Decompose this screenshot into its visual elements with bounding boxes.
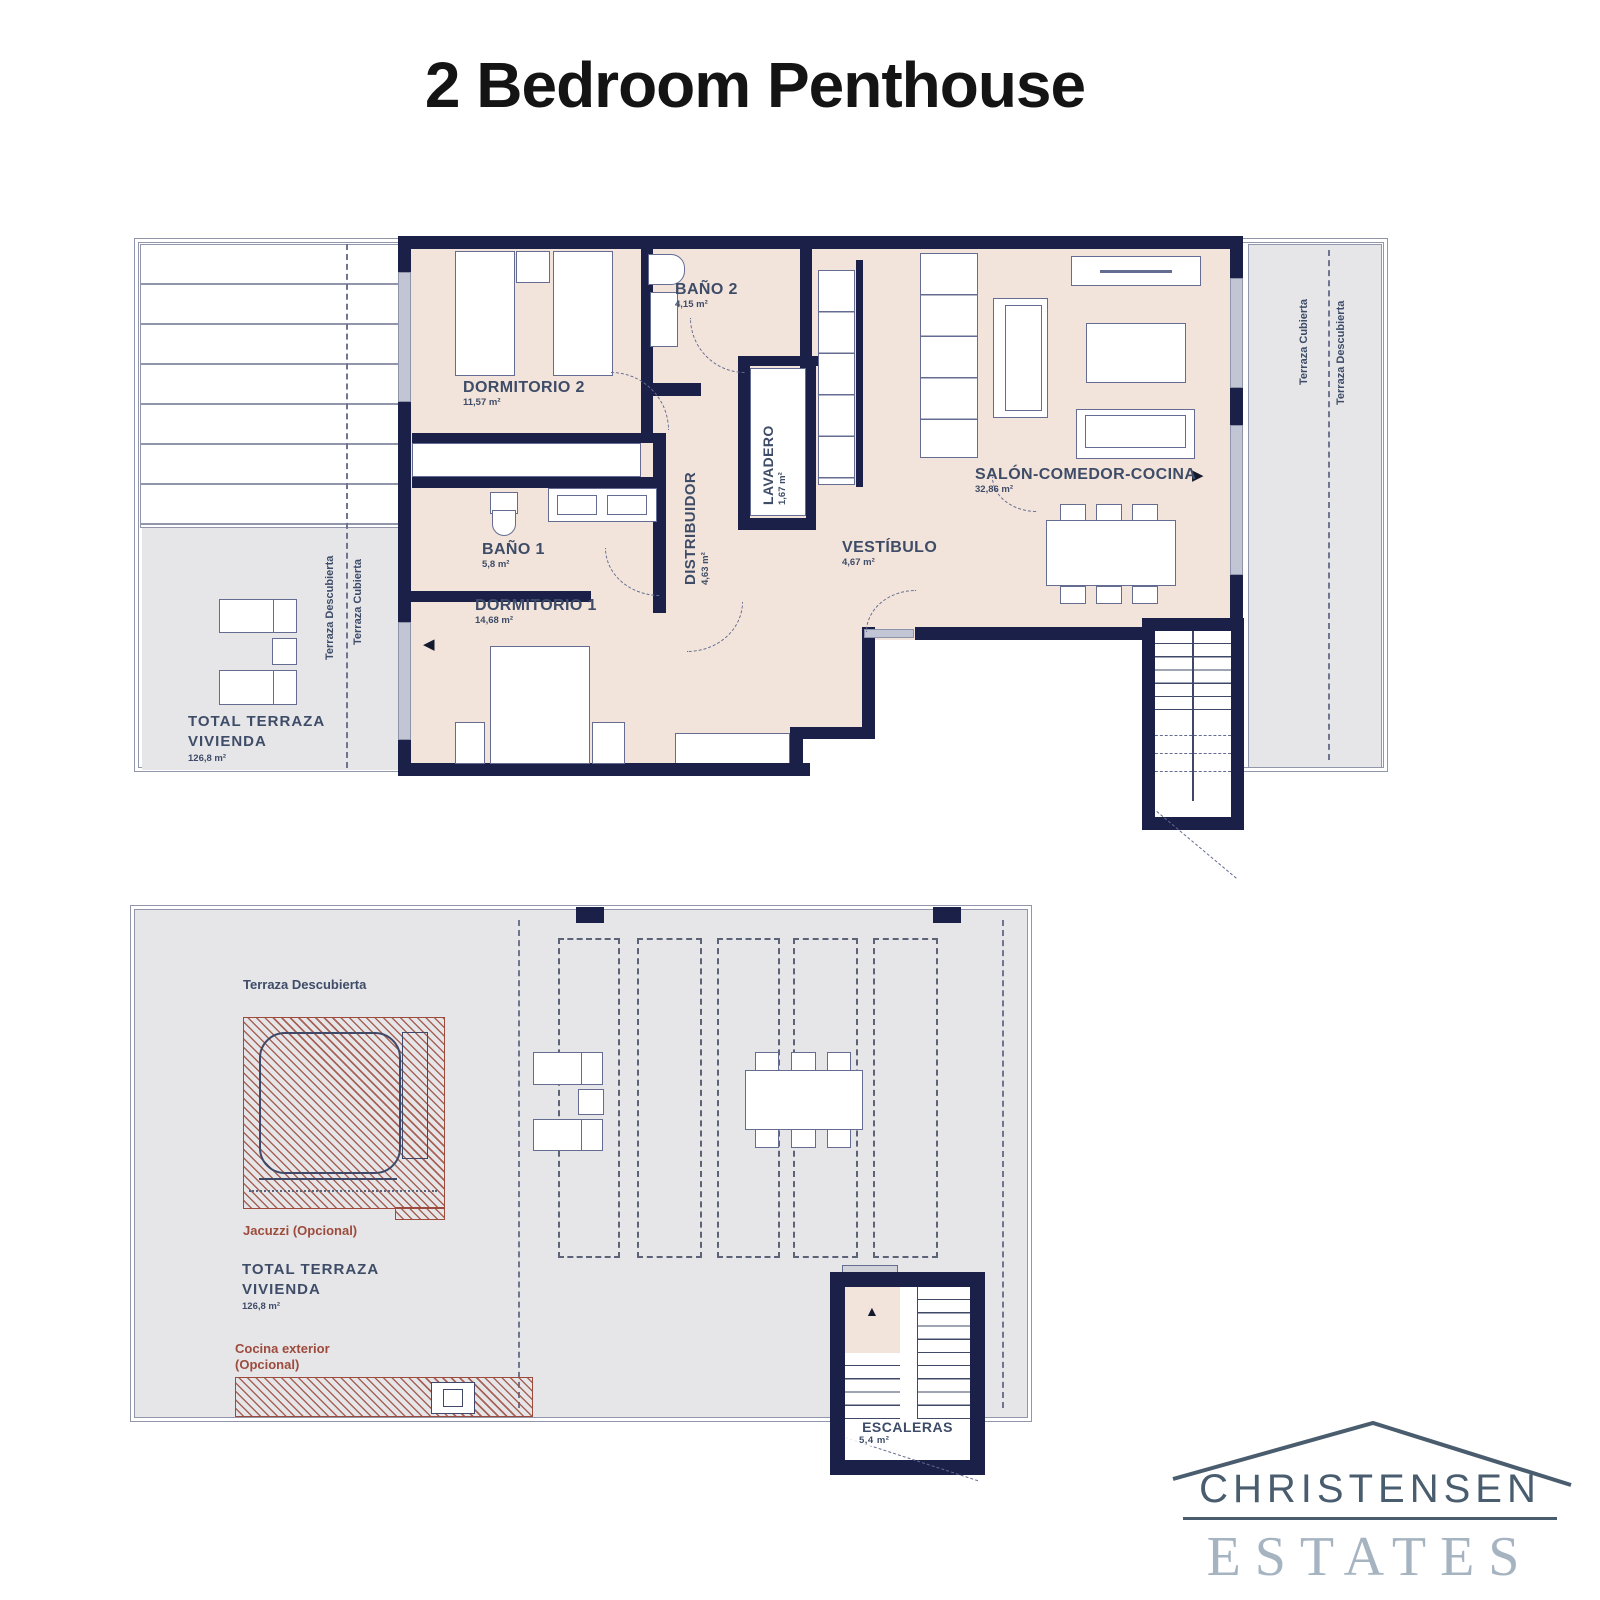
- wall: [915, 627, 1150, 640]
- room-area: 5,4 m²: [845, 1435, 970, 1446]
- page-title: 2 Bedroom Penthouse: [0, 48, 1510, 122]
- total-line2: VIVIENDA: [188, 733, 267, 750]
- chair: [755, 1052, 779, 1071]
- right-terrace: [1248, 244, 1382, 768]
- sun-lounger: [533, 1119, 603, 1151]
- room-name: BAÑO 2: [675, 281, 738, 298]
- window: [398, 622, 411, 740]
- total-line1: TOTAL TERRAZA: [242, 1261, 379, 1278]
- jacuzzi-label: Jacuzzi (Opcional): [243, 1223, 357, 1239]
- room-area: 5,8 m²: [482, 559, 545, 570]
- dining-table: [1046, 520, 1176, 586]
- room-name: DISTRIBUIDOR: [682, 472, 699, 585]
- bed: [490, 646, 590, 764]
- outdoor-kitchen-label: Cocina exterior (Opcional): [235, 1341, 330, 1374]
- total-terrace-note: TOTAL TERRAZA VIVIENDA 126,8 m²: [188, 712, 325, 765]
- room-name: DORMITORIO 1: [475, 597, 597, 614]
- terrace-divider-line: [346, 244, 348, 768]
- pergola-bay: [873, 938, 938, 1258]
- chair: [827, 1052, 851, 1071]
- chair: [1132, 586, 1158, 604]
- stairwell: [1142, 618, 1244, 830]
- wall: [738, 518, 816, 530]
- room-label-bano2: BAÑO 2 4,15 m²: [675, 280, 738, 311]
- pillar: [576, 907, 604, 923]
- view-arrow-left-icon: ◀: [423, 635, 435, 653]
- toilet: [492, 510, 516, 536]
- brand-divider: [1183, 1517, 1557, 1520]
- facade-recess: [675, 733, 790, 764]
- room-name: SALÓN-COMEDOR-COCINA: [975, 466, 1196, 483]
- bed: [553, 251, 613, 376]
- brand-type: ESTATES: [1155, 1525, 1585, 1589]
- stair-stringer: [1192, 631, 1194, 801]
- window: [398, 272, 411, 402]
- sun-lounger: [219, 670, 297, 705]
- room-label-salon: SALÓN-COMEDOR-COCINA 32,86 m²: [975, 465, 1196, 496]
- jacuzzi-step: [395, 1207, 445, 1220]
- terrace-label-descubierta: Terraza Descubierta: [1335, 255, 1347, 405]
- terrace-divider-line: [1328, 250, 1330, 760]
- terrace-label-descubierta: Terraza Descubierta: [324, 525, 336, 660]
- lower-floor-plan: Terraza Descubierta Jacuzzi (Opcional) T…: [130, 905, 1035, 1480]
- room-label-lavadero: LAVADERO 1,67 m²: [760, 380, 788, 505]
- exterior-cutout: [862, 640, 1142, 776]
- room-label-dormitorio2: DORMITORIO 2 11,57 m²: [463, 378, 585, 409]
- total-area: 126,8 m²: [188, 753, 325, 766]
- chair: [1060, 586, 1086, 604]
- nightstand: [592, 722, 625, 764]
- stair-step-dashed: [1155, 771, 1231, 772]
- nightstand: [455, 722, 485, 764]
- room-area: 14,68 m²: [475, 615, 597, 626]
- room-area: 32,86 m²: [975, 484, 1196, 495]
- coffee-table: [1086, 323, 1186, 383]
- pergola-bay: [637, 938, 702, 1258]
- terrace-label-cubierta: Terraza Cubierta: [1298, 255, 1310, 385]
- room-label-vestibulo: VESTÍBULO 4,67 m²: [842, 538, 937, 569]
- wall: [806, 356, 816, 530]
- wall: [738, 356, 750, 530]
- cocina-line2: (Opcional): [235, 1357, 299, 1372]
- window: [1230, 425, 1243, 575]
- room-area: 4,67 m²: [842, 557, 937, 568]
- wall: [790, 727, 803, 776]
- room-label-distribuidor: DISTRIBUIDOR 4,63 m²: [682, 400, 711, 585]
- stair-steps: [917, 1287, 970, 1419]
- side-table: [272, 638, 297, 665]
- total-area: 126,8 m²: [242, 1301, 379, 1314]
- wall: [398, 236, 1243, 249]
- kitchen-cabinets: [818, 270, 855, 485]
- roof-dashed-line: [518, 920, 520, 1408]
- up-arrow-icon: ▲: [865, 1303, 879, 1319]
- stair-step-dashed: [1155, 735, 1231, 736]
- dining-table: [745, 1070, 863, 1130]
- room-area: 1,67 m²: [777, 380, 788, 505]
- roof-terrace-label: Terraza Descubierta: [243, 977, 366, 992]
- pillar: [933, 907, 961, 923]
- stairs-label: ESCALERAS 5,4 m²: [845, 1419, 970, 1446]
- total-line2: VIVIENDA: [242, 1281, 321, 1298]
- wall: [398, 763, 810, 776]
- chair: [791, 1129, 816, 1148]
- sun-lounger: [533, 1052, 603, 1085]
- wall: [412, 433, 653, 443]
- total-line1: TOTAL TERRAZA: [188, 713, 325, 730]
- room-name: LAVADERO: [760, 425, 776, 505]
- upper-floor-plan: Terraza Descubierta Terraza Cubierta TOT…: [130, 230, 1392, 840]
- chair: [827, 1129, 851, 1148]
- sofa: [993, 298, 1048, 418]
- sun-lounger: [219, 599, 297, 633]
- shower: [650, 292, 678, 347]
- kitchen-island: [920, 253, 978, 458]
- wall: [862, 627, 875, 739]
- jacuzzi: [243, 1017, 445, 1209]
- terrace-label-cubierta: Terraza Cubierta: [352, 525, 364, 645]
- cocina-line1: Cocina exterior: [235, 1341, 330, 1356]
- outdoor-kitchen-counter: [235, 1377, 533, 1417]
- roof-dashed-line: [1002, 920, 1004, 1408]
- room-area: 4,15 m²: [675, 299, 738, 310]
- total-terrace-note: TOTAL TERRAZA VIVIENDA 126,8 m²: [242, 1260, 379, 1313]
- room-label-dormitorio1: DORMITORIO 1 14,68 m²: [475, 596, 597, 627]
- nightstand: [516, 251, 550, 283]
- stair-step-dashed: [1155, 753, 1231, 754]
- room-name: DORMITORIO 2: [463, 379, 585, 396]
- chair: [755, 1129, 779, 1148]
- brand-logo: CHRISTENSEN ESTATES: [1155, 1415, 1585, 1595]
- room-area: 11,57 m²: [463, 397, 585, 408]
- bathroom-counter: [548, 488, 657, 522]
- chair: [791, 1052, 816, 1071]
- room-name: VESTÍBULO: [842, 539, 937, 556]
- stair-landing: ▲: [845, 1287, 900, 1353]
- sofa: [1076, 409, 1195, 459]
- brand-name: CHRISTENSEN: [1155, 1467, 1585, 1512]
- room-name: ESCALERAS: [862, 1419, 953, 1435]
- room-name: BAÑO 1: [482, 541, 545, 558]
- bed: [455, 251, 515, 376]
- tv-unit: [1071, 256, 1201, 286]
- wardrobe: [412, 443, 641, 477]
- stair-steps: [845, 1353, 900, 1419]
- floor-plan-sheet: 2 Bedroom Penthouse Terraza Descubierta …: [0, 0, 1600, 1600]
- room-area: 4,63 m²: [700, 400, 711, 585]
- wall: [856, 260, 863, 487]
- wall: [412, 477, 653, 488]
- stair-diagonal: [1156, 811, 1236, 879]
- pergola-terrace: [140, 244, 402, 528]
- room-label-bano1: BAÑO 1 5,8 m²: [482, 540, 545, 571]
- window: [1230, 278, 1243, 388]
- stairwell: ▲ ESCALERAS 5,4 m²: [830, 1272, 985, 1475]
- chair: [1096, 586, 1122, 604]
- side-table: [578, 1089, 604, 1115]
